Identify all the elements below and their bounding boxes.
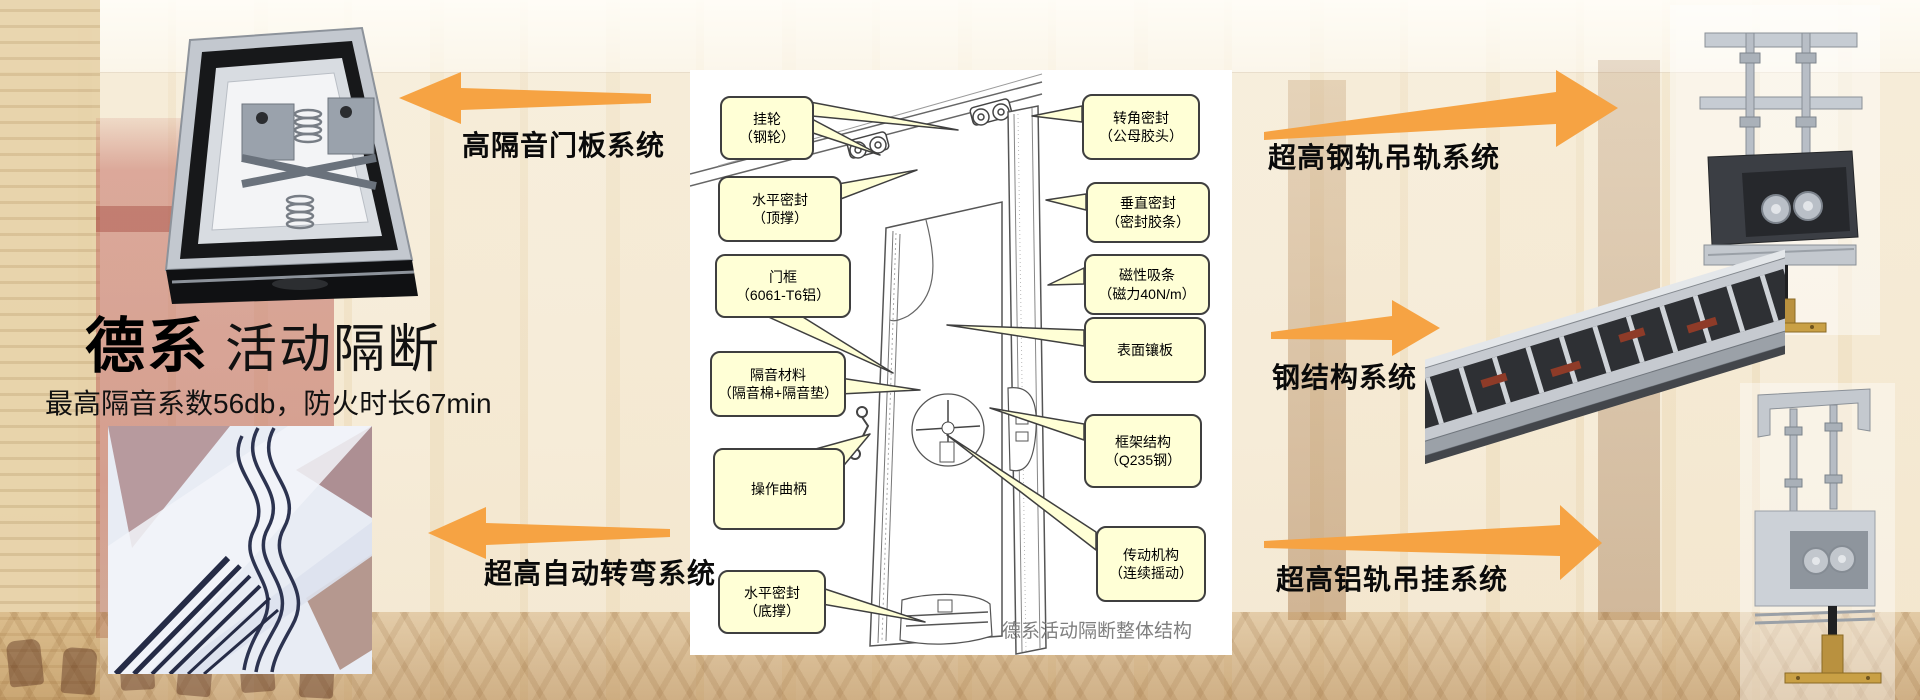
callout-door-frame: 门框 （6061-T6铝） xyxy=(715,254,851,318)
product-title-bold: 德系 xyxy=(85,298,209,385)
callout-corner-seal: 转角密封 （公母胶头） xyxy=(1082,94,1200,160)
callout-line: （6061-T6铝） xyxy=(736,286,830,304)
callout-line: （磁力40N/m） xyxy=(1098,285,1195,303)
callout-line: （密封胶条） xyxy=(1106,213,1190,231)
system-label-aluminum-rail: 超高铝轨吊挂系统 xyxy=(1276,558,1508,598)
callout-line: 框架结构 xyxy=(1115,433,1171,451)
callout-line: 表面镶板 xyxy=(1117,341,1173,359)
callout-operating-crank: 操作曲柄 xyxy=(713,448,845,530)
callout-line: 垂直密封 xyxy=(1120,194,1176,212)
callout-hanging-wheel: 挂轮 （钢轮） xyxy=(720,96,814,160)
callout-line: 水平密封 xyxy=(744,584,800,602)
chair-silhouette xyxy=(60,647,97,695)
system-label-door-panel: 高隔音门板系统 xyxy=(462,124,665,164)
chair-silhouette xyxy=(6,638,45,687)
callout-line: 操作曲柄 xyxy=(751,480,807,498)
door-panel-mechanism-photo xyxy=(150,12,430,304)
callout-line: 磁性吸条 xyxy=(1119,266,1175,284)
callout-transmission-mechanism: 传动机构 （连续摇动） xyxy=(1096,526,1206,602)
callout-magnetic-strip: 磁性吸条 （磁力40N/m） xyxy=(1084,254,1210,315)
aluminum-rail-hanger-photo xyxy=(1730,383,1900,700)
curved-track-detail-photo xyxy=(108,426,372,674)
callout-line: 水平密封 xyxy=(752,191,808,209)
callout-line: （顶撑） xyxy=(752,209,808,227)
diagram-caption: 德系活动隔断整体结构 xyxy=(1002,616,1192,643)
callout-sound-insulation-material: 隔音材料 （隔音棉+隔音垫） xyxy=(710,351,846,417)
callout-horizontal-seal-top: 水平密封 （顶撑） xyxy=(718,176,842,242)
system-label-auto-turning: 超高自动转弯系统 xyxy=(484,552,716,592)
callout-tail xyxy=(810,102,958,130)
callout-frame-structure: 框架结构 （Q235钢） xyxy=(1084,414,1202,488)
system-label-steel-rail: 超高钢轨吊轨系统 xyxy=(1268,136,1500,176)
callout-line: （底撑） xyxy=(744,602,800,620)
structure-diagram-panel: 挂轮 （钢轮） 水平密封 （顶撑） 门框 （6061-T6铝） 隔音材料 （隔音… xyxy=(690,70,1232,655)
product-title: 德系 活动隔断 xyxy=(85,298,441,385)
callout-line: （隔音棉+隔音垫） xyxy=(718,384,838,402)
callout-line: 转角密封 xyxy=(1113,109,1169,127)
product-title-regular: 活动隔断 xyxy=(225,307,441,382)
callout-line: 传动机构 xyxy=(1123,546,1179,564)
callout-line: （连续摇动） xyxy=(1109,564,1193,582)
system-label-steel-structure: 钢结构系统 xyxy=(1272,356,1417,396)
callout-surface-panel: 表面镶板 xyxy=(1084,317,1206,383)
arrow-right-icon xyxy=(1266,295,1444,361)
slide-canvas: 德系 活动隔断 最高隔音系数56db，防火时长67min 高隔音门板系统 xyxy=(0,0,1920,700)
callout-line: （Q235钢） xyxy=(1105,451,1181,469)
callout-line: （钢轮） xyxy=(739,128,795,146)
arrow-left-icon xyxy=(395,66,655,128)
callout-line: 隔音材料 xyxy=(750,366,806,384)
product-subtitle: 最高隔音系数56db，防火时长67min xyxy=(45,382,492,422)
callout-line: （公母胶头） xyxy=(1099,127,1183,145)
callout-line: 门框 xyxy=(769,268,797,286)
callout-line: 挂轮 xyxy=(753,110,781,128)
callout-horizontal-seal-bottom: 水平密封 （底撑） xyxy=(718,570,826,634)
callout-vertical-seal: 垂直密封 （密封胶条） xyxy=(1086,182,1210,243)
